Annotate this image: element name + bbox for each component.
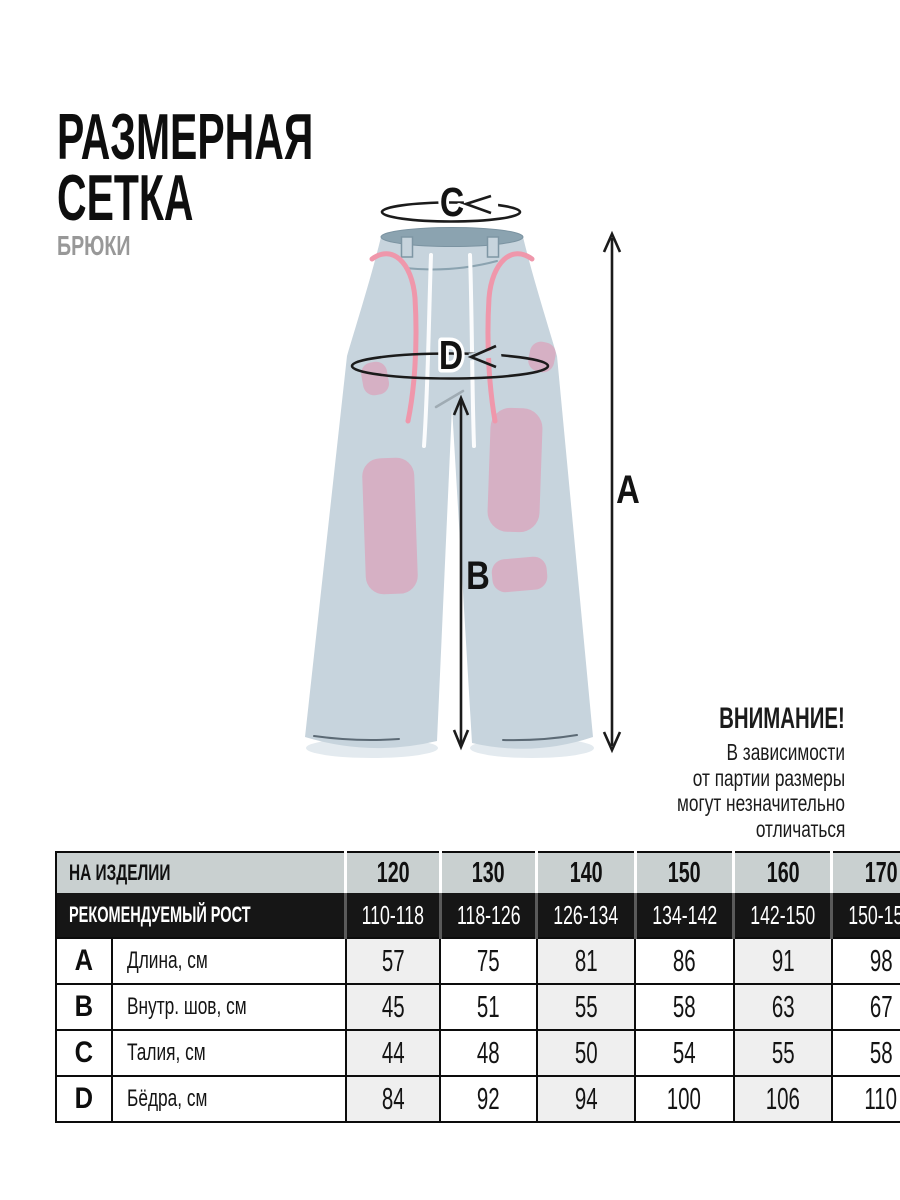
size-col-header: 120 [346, 852, 441, 893]
notice-text-line: В зависимости [525, 740, 845, 766]
value-cell: 81 [537, 938, 635, 984]
row-label: Внутр. шов, см [112, 984, 345, 1030]
page-title-line1: РАЗМЕРНАЯ [57, 106, 313, 167]
value-cell: 75 [440, 938, 537, 984]
value-cell: 48 [440, 1030, 537, 1076]
height-cell: 118-126 [440, 893, 537, 938]
row-key: B [56, 984, 112, 1030]
value-cell: 51 [440, 984, 537, 1030]
row-key: C [56, 1030, 112, 1076]
value-cell: 58 [635, 984, 733, 1030]
row-key: A [56, 938, 112, 984]
trousers-illustration: C D A B [280, 178, 700, 778]
row-key: D [56, 1076, 112, 1122]
size-row-header: НА ИЗДЕЛИИ [56, 852, 346, 893]
patch-left-leg [362, 457, 419, 595]
value-cell: 91 [734, 938, 832, 984]
size-col-header: 170 [832, 852, 900, 893]
patch-right-thigh [487, 407, 543, 533]
height-cell: 150-158 [832, 893, 900, 938]
label-d: D [439, 332, 463, 378]
table-row-waist: C Талия, см 44 48 50 54 55 58 [56, 1030, 900, 1076]
size-table: НА ИЗДЕЛИИ 120 130 140 150 160 170 РЕКОМ… [55, 851, 900, 1123]
value-cell: 55 [537, 984, 635, 1030]
notice-text-line: отличаться [525, 817, 845, 843]
page-subtitle: БРЮКИ [57, 230, 162, 262]
pants-body [305, 237, 593, 749]
size-col-header: 160 [734, 852, 832, 893]
table-row-hips: D Бёдра, см 84 92 94 100 106 110 [56, 1076, 900, 1122]
size-col-header: 140 [537, 852, 635, 893]
value-cell: 63 [734, 984, 832, 1030]
height-cell: 134-142 [635, 893, 733, 938]
label-b: B [466, 553, 490, 598]
notice-text-line: от партии размеры [525, 766, 845, 792]
table-row-length: A Длина, см 57 75 81 86 91 98 [56, 938, 900, 984]
label-c: C [440, 179, 464, 225]
height-cell: 110-118 [346, 893, 441, 938]
value-cell: 86 [635, 938, 733, 984]
row-label: Талия, см [112, 1030, 345, 1076]
value-cell: 98 [832, 938, 900, 984]
value-cell: 57 [346, 938, 441, 984]
value-cell: 55 [734, 1030, 832, 1076]
value-cell: 54 [635, 1030, 733, 1076]
table-row-heights: РЕКОМЕНДУЕМЫЙ РОСТ 110-118 118-126 126-1… [56, 893, 900, 938]
value-cell: 94 [537, 1076, 635, 1122]
row-label: Бёдра, см [112, 1076, 345, 1122]
height-cell: 126-134 [537, 893, 635, 938]
value-cell: 100 [635, 1076, 733, 1122]
belt-loop-right [488, 237, 499, 257]
notice-text-line: могут незначительно [525, 791, 845, 817]
size-chart-page: РАЗМЕРНАЯ СЕТКА БРЮКИ [0, 0, 900, 1200]
value-cell: 84 [346, 1076, 441, 1122]
belt-loop-left [402, 237, 413, 257]
table-row-inseam: B Внутр. шов, см 45 51 55 58 63 67 [56, 984, 900, 1030]
value-cell: 58 [832, 1030, 900, 1076]
patch-right-knee [491, 556, 549, 594]
row-label: Длина, см [112, 938, 345, 984]
value-cell: 44 [346, 1030, 441, 1076]
height-row-header: РЕКОМЕНДУЕМЫЙ РОСТ [56, 893, 346, 938]
size-col-header: 150 [635, 852, 733, 893]
label-a: A [616, 467, 640, 512]
notice-title: ВНИМАНИЕ! [525, 702, 845, 736]
page-title-line2: СЕТКА [57, 167, 313, 228]
height-cell: 142-150 [734, 893, 832, 938]
size-col-header: 130 [440, 852, 537, 893]
notice-block: ВНИМАНИЕ! В зависимости от партии размер… [525, 702, 845, 842]
value-cell: 92 [440, 1076, 537, 1122]
value-cell: 67 [832, 984, 900, 1030]
table-row-sizes: НА ИЗДЕЛИИ 120 130 140 150 160 170 [56, 852, 900, 893]
value-cell: 50 [537, 1030, 635, 1076]
value-cell: 106 [734, 1076, 832, 1122]
value-cell: 45 [346, 984, 441, 1030]
value-cell: 110 [832, 1076, 900, 1122]
